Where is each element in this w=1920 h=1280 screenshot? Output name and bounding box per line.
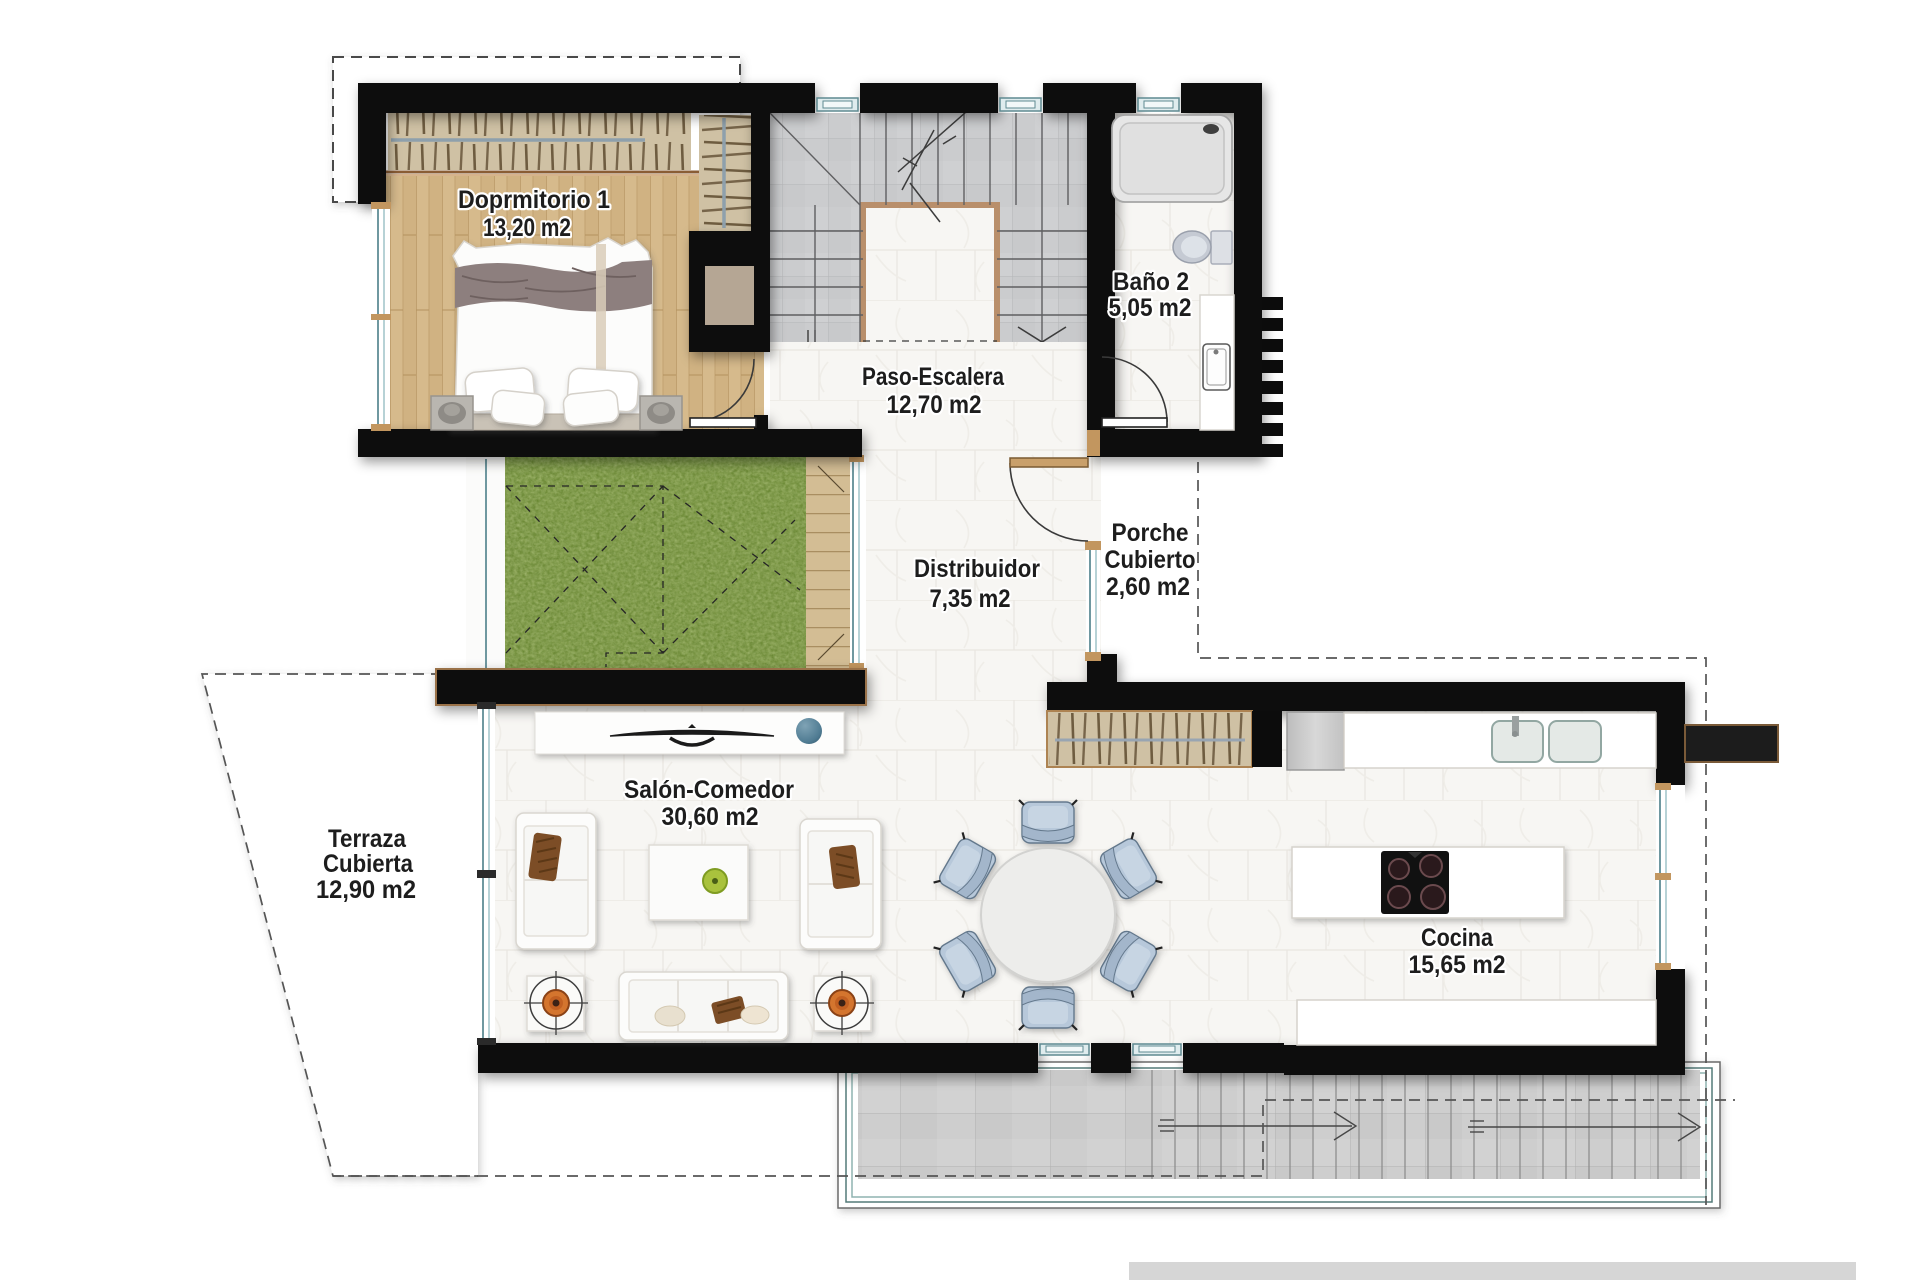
svg-text:Cocina: Cocina <box>1421 924 1494 952</box>
svg-text:Cubierta: Cubierta <box>323 850 414 878</box>
svg-text:Cubierto: Cubierto <box>1105 546 1196 574</box>
svg-text:12,70 m2: 12,70 m2 <box>887 391 982 419</box>
svg-text:5,05 m2: 5,05 m2 <box>1109 294 1192 322</box>
svg-text:Paso-Escalera: Paso-Escalera <box>862 363 1005 391</box>
svg-text:Terraza: Terraza <box>328 825 407 853</box>
svg-text:2,60 m2: 2,60 m2 <box>1106 573 1190 601</box>
svg-text:12,90 m2: 12,90 m2 <box>316 876 416 904</box>
svg-text:13,20 m2: 13,20 m2 <box>483 214 571 242</box>
svg-text:Salón-Comedor: Salón-Comedor <box>624 776 794 804</box>
svg-text:Porche: Porche <box>1112 519 1189 547</box>
svg-text:Distribuidor: Distribuidor <box>914 555 1040 583</box>
svg-text:Baño 2: Baño 2 <box>1113 268 1189 296</box>
svg-text:Doprmitorio 1: Doprmitorio 1 <box>458 186 610 214</box>
svg-text:15,65 m2: 15,65 m2 <box>1409 951 1506 979</box>
svg-text:30,60 m2: 30,60 m2 <box>662 803 759 831</box>
svg-text:7,35 m2: 7,35 m2 <box>930 585 1011 613</box>
